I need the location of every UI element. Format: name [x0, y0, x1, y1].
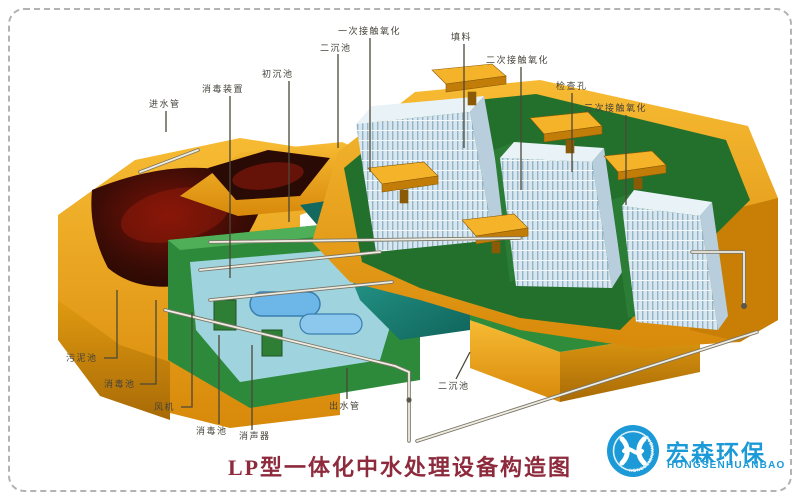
label-disinfection-device: 消毒装置 — [202, 84, 244, 94]
company-logo: HONGSENHUANBAO 宏森环保 HONGSENHUANBAO — [604, 422, 784, 482]
logo-name-en: HONGSENHUANBAO — [667, 460, 785, 471]
label-first-contact-oxidation: 一次接触氧化 — [338, 26, 401, 36]
label-outlet-pipe: 出水管 — [329, 401, 361, 411]
label-primary-sedimentation-tank: 初沉池 — [262, 69, 294, 79]
screenshot-root: 进水管 消毒装置 初沉池 二沉池 一次接触氧化 填料 二次接触氧化 检查孔 三次… — [0, 0, 800, 500]
label-sludge-tank: 污泥池 — [66, 353, 98, 363]
label-secondary-sedimentation-tank-bottom: 二沉池 — [438, 381, 470, 391]
leader-secondary-sedimentation-bottom — [456, 352, 470, 379]
label-secondary-sedimentation-tank-top: 二沉池 — [320, 43, 352, 53]
logo-mark-icon: HONGSENHUANBAO — [604, 422, 662, 480]
packing-block-3 — [622, 190, 728, 330]
label-blower: 风机 — [154, 402, 175, 412]
label-packing-media: 填料 — [451, 32, 472, 42]
label-second-contact-oxidation: 二次接触氧化 — [486, 55, 549, 65]
pipe-elbow-fitting — [741, 303, 747, 309]
packing-block-2 — [500, 142, 622, 288]
label-inspection-hole: 检查孔 — [556, 81, 588, 91]
label-disinfection-tank-left: 消毒池 — [104, 379, 136, 389]
label-third-contact-oxidation: 三次接触氧化 — [584, 103, 647, 113]
label-disinfection-tank-bottom: 消毒池 — [196, 426, 228, 436]
label-silencer: 消声器 — [239, 431, 271, 441]
label-inlet-pipe: 进水管 — [149, 99, 181, 109]
